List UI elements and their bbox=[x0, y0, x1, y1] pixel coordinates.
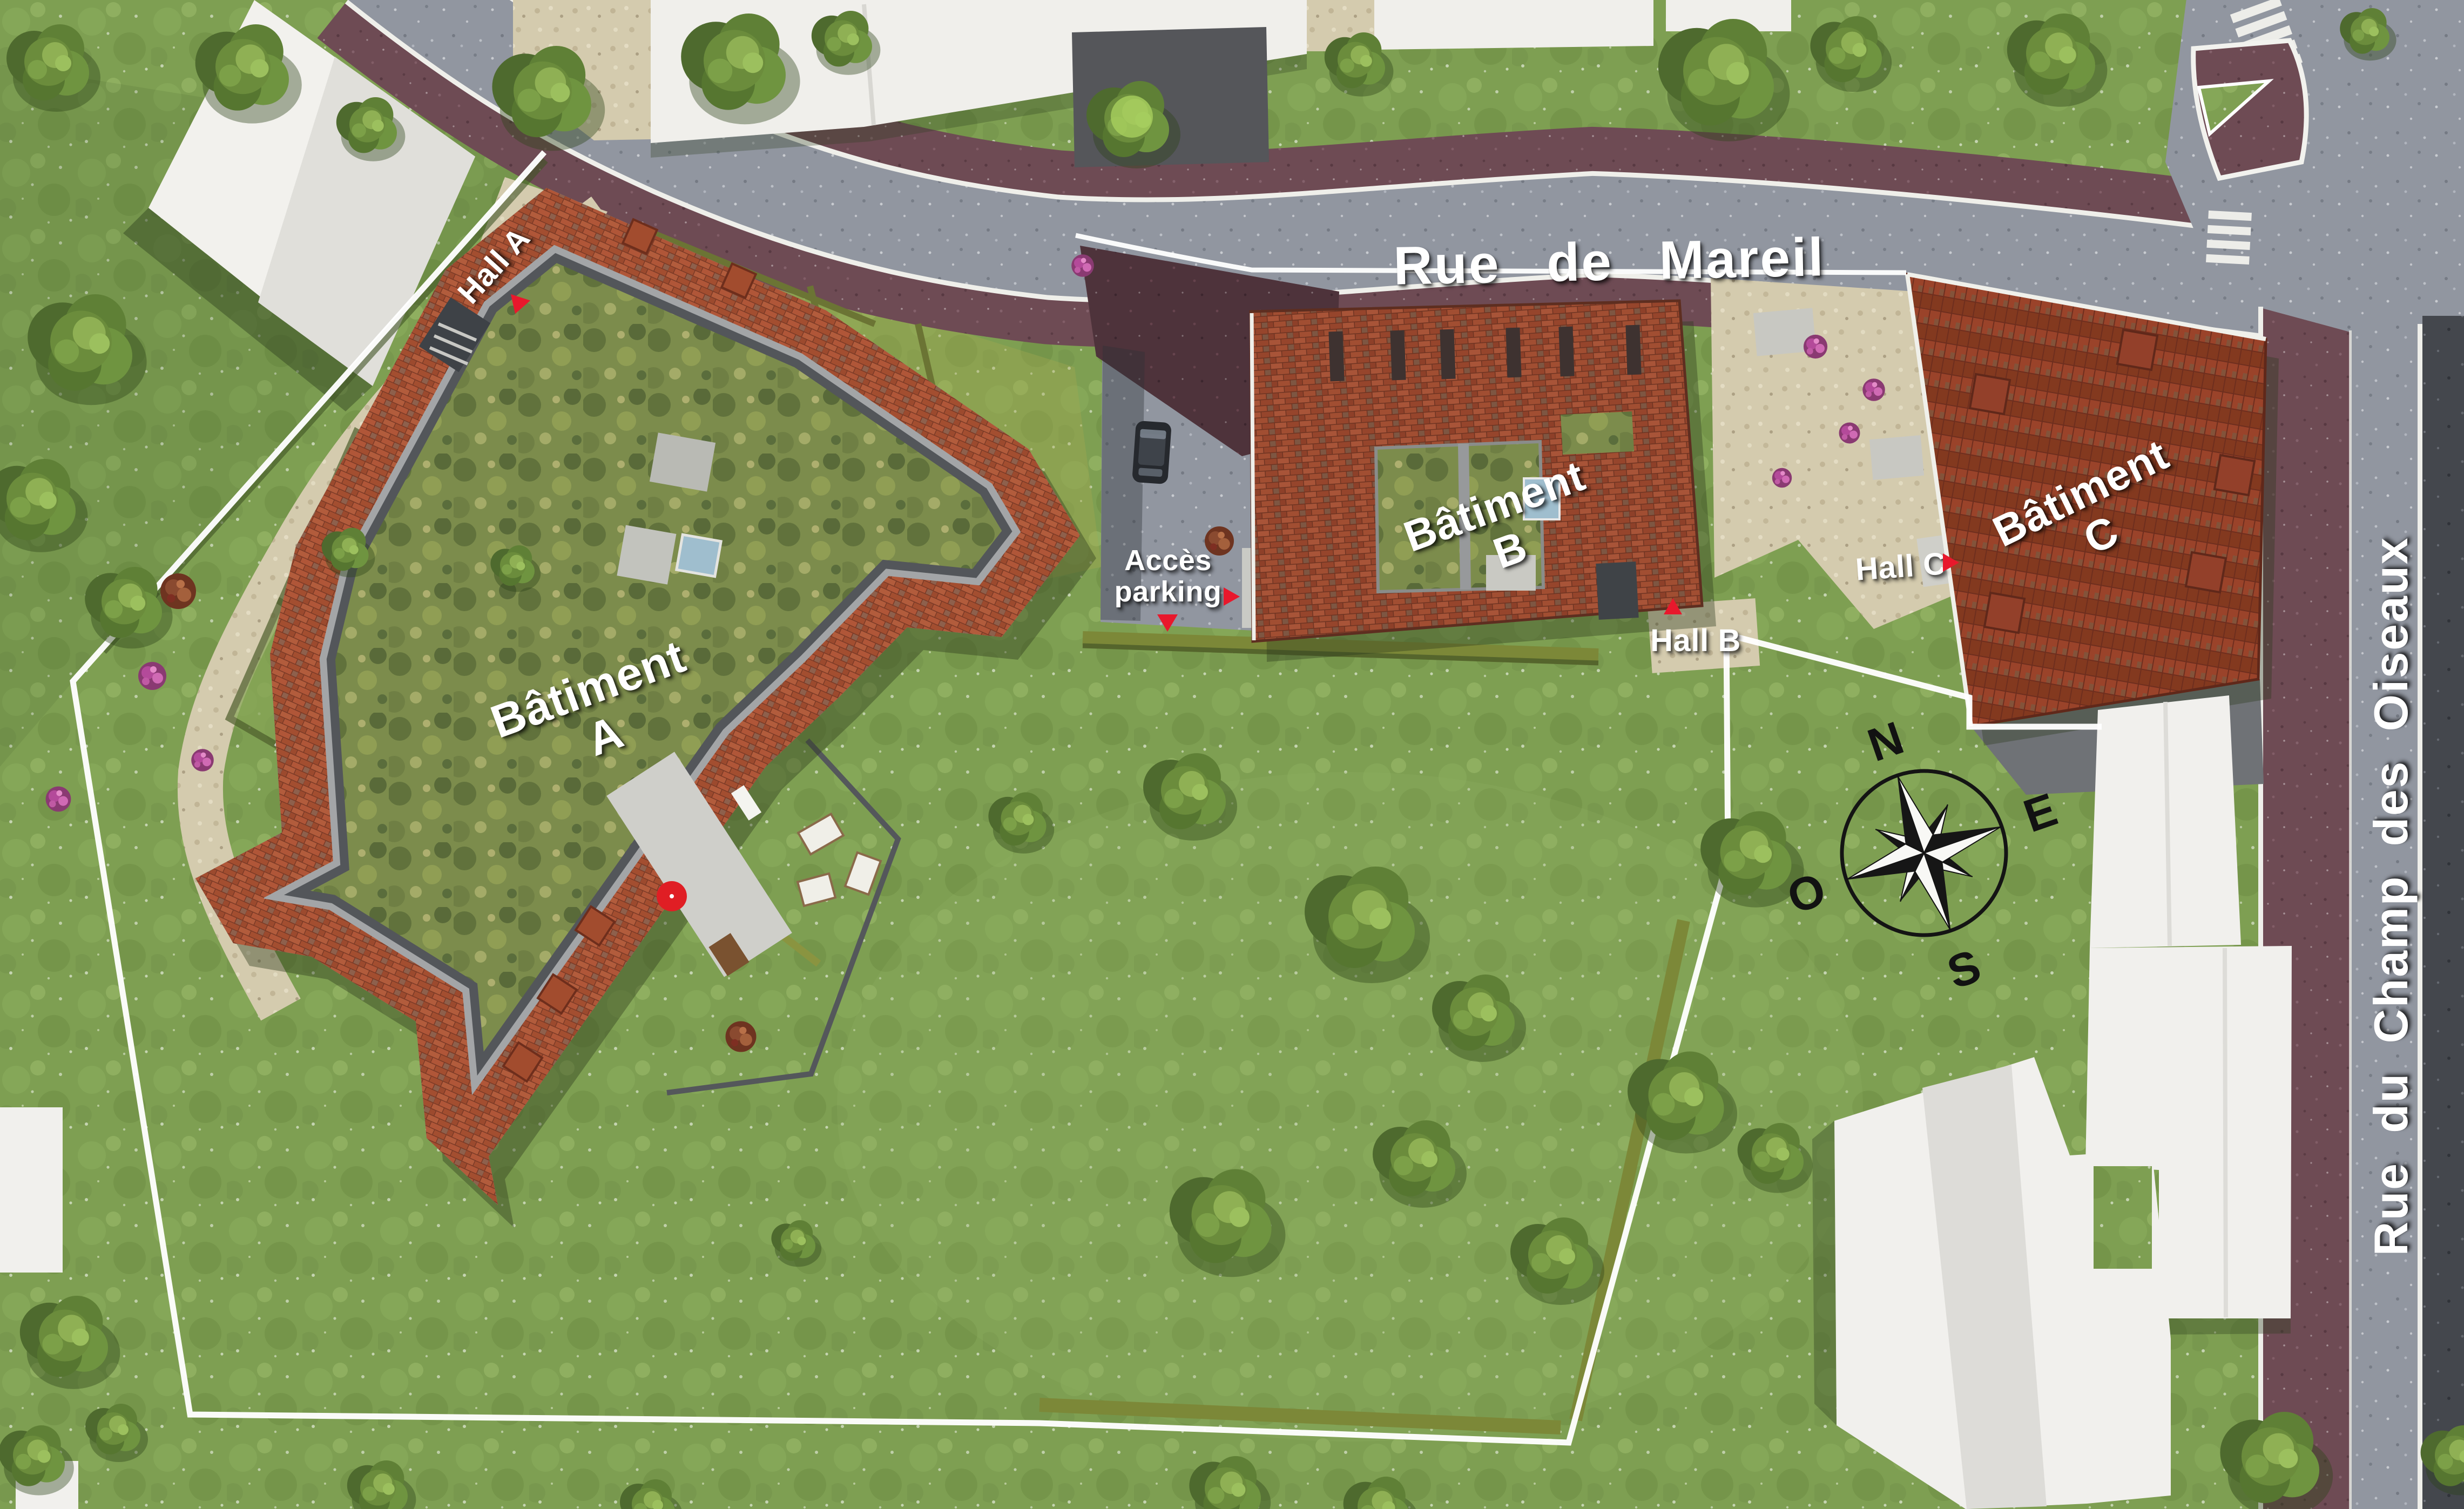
white-building-west-edge bbox=[0, 1107, 63, 1273]
parking-access-label[interactable]: Accès parking bbox=[1115, 545, 1222, 608]
vertical-center-line bbox=[2418, 324, 2423, 1509]
building-b-green-patch bbox=[1561, 411, 1634, 455]
white-roof-2 bbox=[1374, 0, 1653, 50]
umbrella-center bbox=[670, 894, 674, 898]
building-notch-lawn bbox=[2094, 1166, 2152, 1269]
traffic-island bbox=[2193, 40, 2306, 178]
roof-pad-2 bbox=[617, 525, 676, 585]
skylight bbox=[677, 534, 721, 577]
court-pad-2 bbox=[1869, 435, 1924, 480]
roof-fold bbox=[2225, 948, 2226, 1317]
building-shadow bbox=[1812, 1121, 1837, 1425]
parking-access-marker-east[interactable] bbox=[1224, 587, 1240, 606]
building-shadow bbox=[2159, 1318, 2291, 1335]
parking-access-marker-south[interactable] bbox=[1157, 614, 1178, 632]
hall-c-marker[interactable] bbox=[1943, 553, 1959, 572]
hall-b-label[interactable]: Hall B bbox=[1650, 624, 1741, 658]
site-plan: N E S O Rue de Mareil Rue du Champ des O… bbox=[0, 0, 2464, 1509]
hall-b-stair bbox=[1596, 561, 1638, 620]
hall-b-marker[interactable] bbox=[1664, 598, 1682, 614]
hall-c-label[interactable]: Hall C bbox=[1854, 547, 1947, 587]
vertical-lane-divider bbox=[2349, 330, 2352, 1509]
building-b[interactable] bbox=[1251, 301, 1716, 662]
site-plan-canvas: N E S O bbox=[0, 0, 2464, 1509]
car bbox=[1132, 421, 1172, 484]
roof-pad-1 bbox=[650, 432, 715, 491]
street-label-rue-de-mareil: Rue de Mareil bbox=[1393, 228, 1825, 295]
vertical-lane-dark bbox=[2422, 316, 2464, 1509]
building-b-west-line bbox=[1252, 313, 1254, 640]
street-label-rue-du-champ-des-oiseaux: Rue du Champ des Oiseaux bbox=[2366, 537, 2416, 1256]
